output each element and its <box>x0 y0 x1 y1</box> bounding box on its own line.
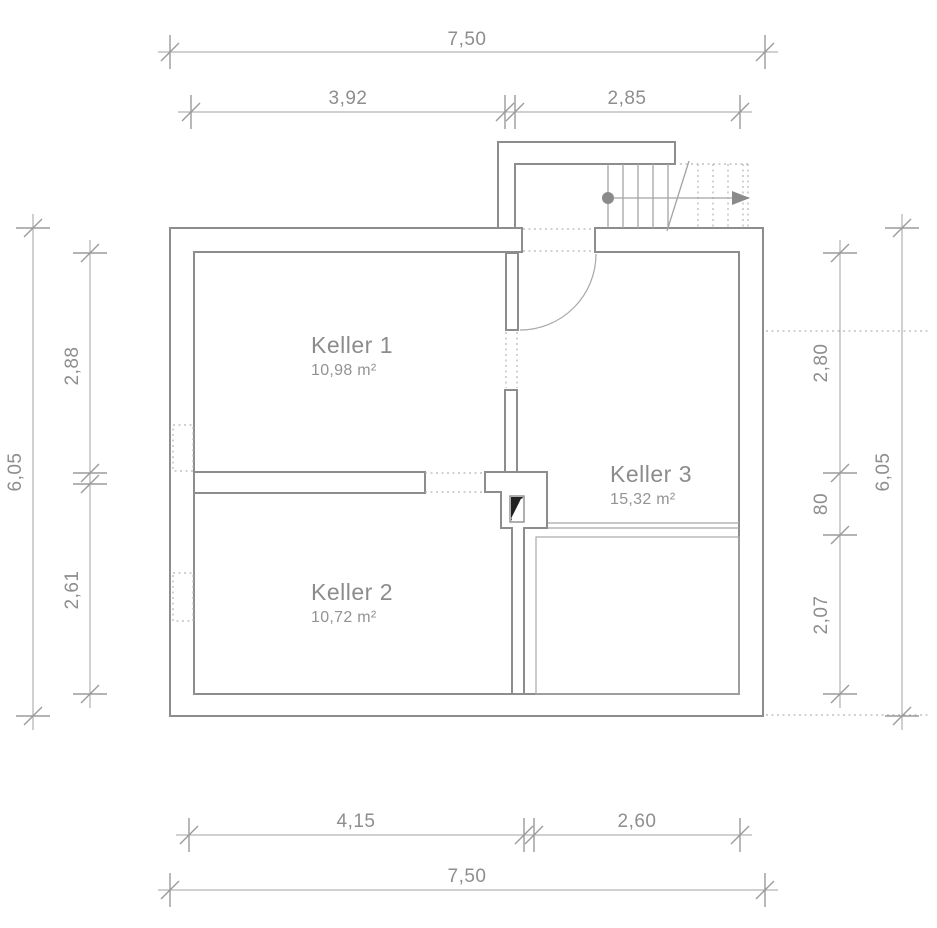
dim-right-total: 6,05 <box>873 214 919 730</box>
dim-value: 3,92 <box>329 88 368 109</box>
dim-right-chain: 2,80 80 2,07 <box>811 240 857 708</box>
building-walls <box>170 142 763 716</box>
room-label-keller-3: Keller 3 15,32 m² <box>610 461 692 508</box>
dim-bottom-total: 7,50 <box>158 866 778 907</box>
dim-left-chain: 2,88 2,61 <box>62 240 107 708</box>
dim-left-total: 6,05 <box>5 214 50 730</box>
lower-right-zone-lines <box>536 523 739 694</box>
room-name: Keller 1 <box>311 332 393 358</box>
dim-value: 2,80 <box>811 344 832 383</box>
chimney-icon <box>510 496 524 522</box>
dim-value: 2,60 <box>618 811 657 832</box>
dim-value: 2,88 <box>62 347 83 386</box>
room-label-keller-1: Keller 1 10,98 m² <box>311 332 393 379</box>
dim-value: 2,85 <box>608 88 647 109</box>
floor-plan-page: Keller 1 10,98 m² Keller 2 10,72 m² Kell… <box>0 0 937 928</box>
door-leaf <box>506 253 518 330</box>
dim-value: 6,05 <box>5 453 26 492</box>
stair-direction-arrow-icon <box>732 191 750 205</box>
floor-plan-svg: Keller 1 10,98 m² Keller 2 10,72 m² Kell… <box>0 0 937 928</box>
stair-vestibule-wall <box>498 142 675 228</box>
room-name: Keller 2 <box>311 579 393 605</box>
dim-top-total: 7,50 <box>158 29 778 69</box>
dim-value: 4,15 <box>337 811 376 832</box>
dim-value: 2,61 <box>62 571 83 610</box>
dim-value: 80 <box>811 493 832 515</box>
entry-door <box>506 253 596 330</box>
door-swing-arc <box>520 254 596 330</box>
room-area: 10,98 m² <box>311 362 377 379</box>
dim-value: 7,50 <box>448 866 487 887</box>
room-name: Keller 3 <box>610 461 692 487</box>
dim-value: 2,07 <box>811 596 832 635</box>
dim-value: 7,50 <box>448 29 487 50</box>
stair-walkline-start-circle <box>602 192 614 204</box>
door-opening-gap <box>523 225 594 255</box>
interior-wall-k1-k3 <box>505 390 517 472</box>
staircase <box>602 161 750 231</box>
dim-bottom-chain: 4,15 2,60 <box>176 811 752 852</box>
room-area: 15,32 m² <box>610 491 676 508</box>
stair-section-cut-line <box>667 161 689 231</box>
room-label-keller-2: Keller 2 10,72 m² <box>311 579 393 626</box>
dim-value: 6,05 <box>873 453 894 492</box>
room-area: 10,72 m² <box>311 609 377 626</box>
dim-top-chain: 3,92 2,85 <box>178 88 752 129</box>
interior-wall-k1-k2 <box>194 472 425 493</box>
